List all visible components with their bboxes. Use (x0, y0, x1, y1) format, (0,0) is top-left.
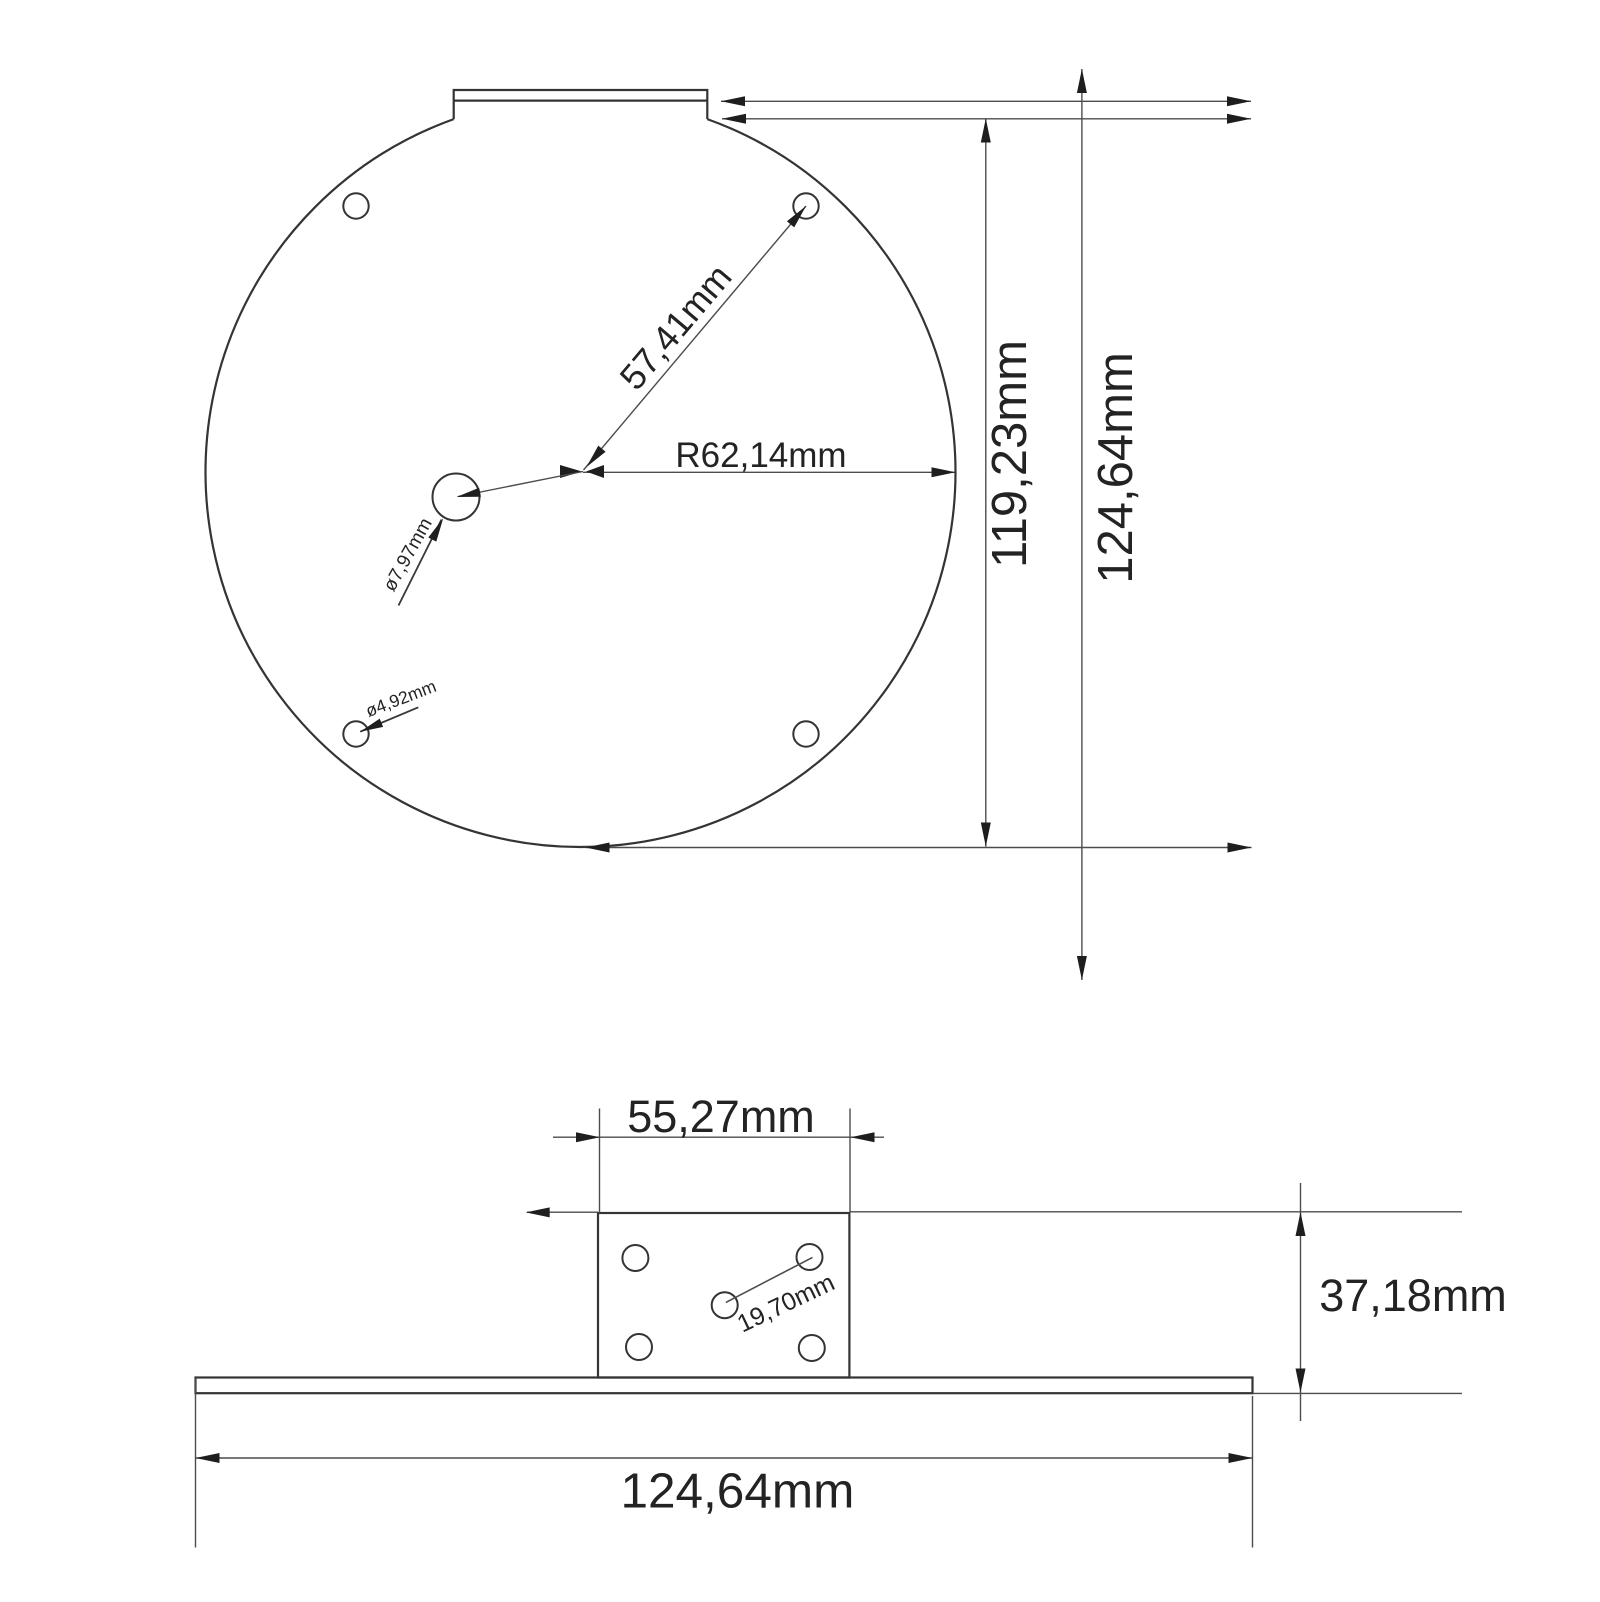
svg-text:R62,14mm: R62,14mm (675, 436, 846, 475)
svg-text:124,64mm: 124,64mm (1089, 352, 1143, 584)
svg-text:55,27mm: 55,27mm (627, 1091, 815, 1142)
svg-text:37,18mm: 37,18mm (1319, 1270, 1507, 1321)
svg-text:124,64mm: 124,64mm (620, 1464, 854, 1519)
svg-text:119,23mm: 119,23mm (983, 340, 1037, 568)
